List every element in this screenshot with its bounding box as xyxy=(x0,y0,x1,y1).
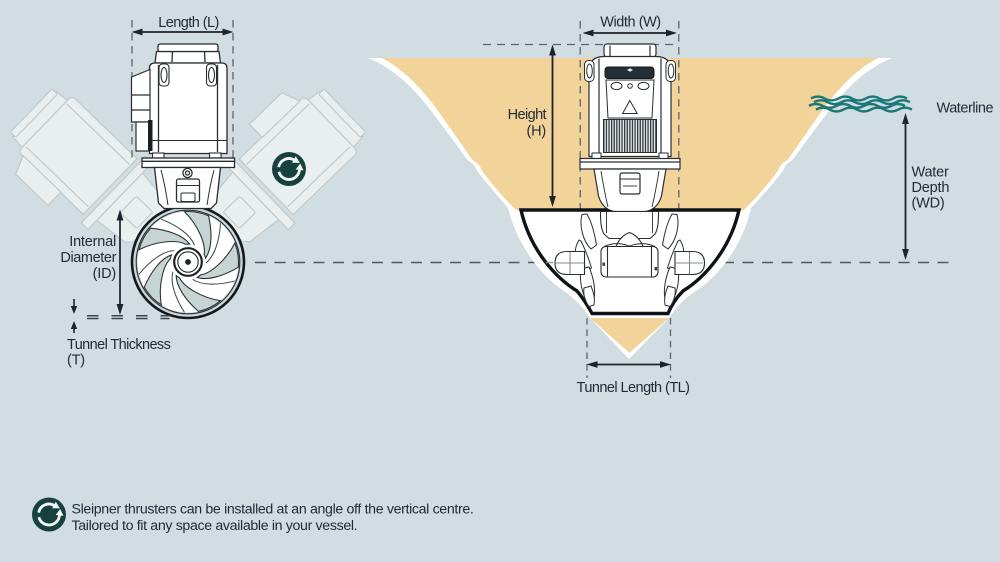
svg-text:Water: Water xyxy=(912,165,950,181)
svg-text:Tunnel Length (TL): Tunnel Length (TL) xyxy=(577,380,690,396)
svg-text:Depth: Depth xyxy=(912,180,950,196)
svg-text:Tunnel Thickness: Tunnel Thickness xyxy=(67,337,171,353)
svg-text:SLEIPNER: SLEIPNER xyxy=(616,74,645,79)
svg-text:Height: Height xyxy=(508,107,547,123)
svg-text:Width (W): Width (W) xyxy=(600,15,660,31)
svg-text:(H): (H) xyxy=(526,124,546,140)
svg-text:Diameter: Diameter xyxy=(60,250,116,266)
svg-text:Length (L): Length (L) xyxy=(158,15,219,31)
svg-text:(WD): (WD) xyxy=(912,196,945,212)
svg-text:Sleipner thrusters can be inst: Sleipner thrusters can be installed at a… xyxy=(72,502,474,518)
svg-text:(ID): (ID) xyxy=(93,266,116,282)
svg-text:Waterline: Waterline xyxy=(937,101,994,117)
svg-text:Internal: Internal xyxy=(69,234,116,250)
svg-text:(T): (T) xyxy=(67,353,85,369)
svg-text:Tailored to fit any space avai: Tailored to fit any space available in y… xyxy=(72,518,358,534)
